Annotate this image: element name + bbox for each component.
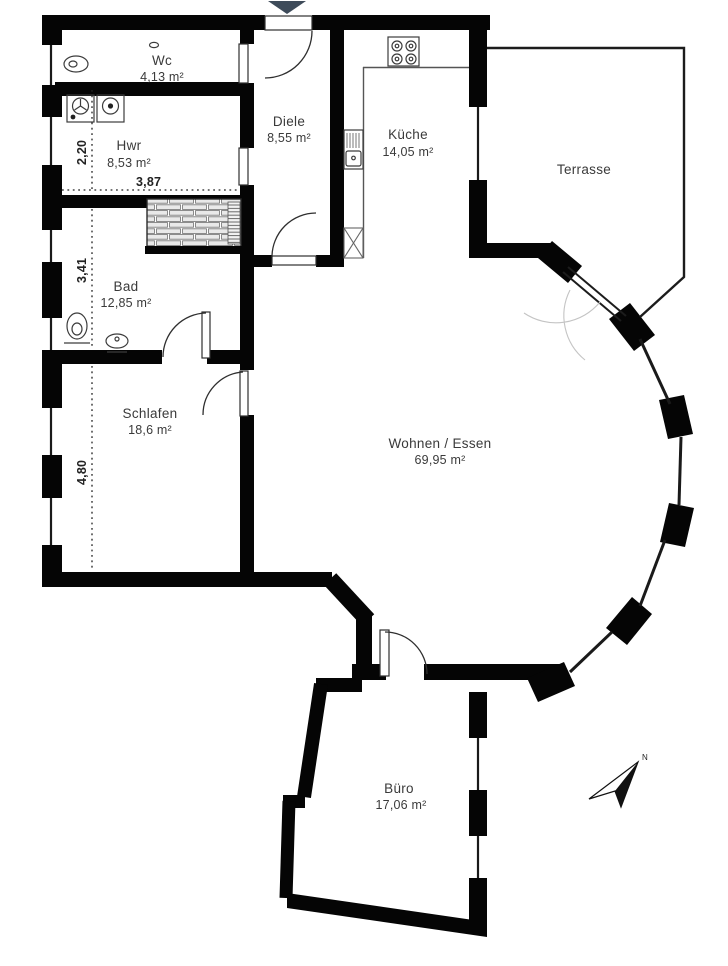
north-arrow-icon: N <box>589 753 648 807</box>
floorplan-page: 2,20 3,87 3,41 4,80 Wc 4,13 m² Hwr 8,53 … <box>0 0 728 966</box>
entrance-door <box>265 16 312 78</box>
bad-sink-icon <box>106 334 128 352</box>
svg-text:8,55 m²: 8,55 m² <box>267 131 311 145</box>
entrance-arrow-icon <box>268 1 306 14</box>
wall-top-right <box>312 15 490 30</box>
kitchen-counter <box>363 67 469 258</box>
dim-hwr-height: 2,20 <box>75 140 89 165</box>
bad-door <box>162 312 210 366</box>
hwr-door <box>239 148 248 185</box>
svg-text:12,85 m²: 12,85 m² <box>101 296 152 310</box>
svg-text:14,05 m²: 14,05 m² <box>383 145 434 159</box>
pier-4 <box>606 597 652 645</box>
svg-text:Bad: Bad <box>114 279 139 294</box>
walls <box>42 15 694 937</box>
wc-door <box>239 44 248 83</box>
pier-2 <box>659 395 693 439</box>
floorplan-drawing: 2,20 3,87 3,41 4,80 Wc 4,13 m² Hwr 8,53 … <box>0 0 728 966</box>
label-wohnen: Wohnen / Essen 69,95 m² <box>388 436 491 467</box>
svg-text:Küche: Küche <box>388 127 428 142</box>
north-label: N <box>642 753 648 762</box>
shower-icon <box>145 199 244 254</box>
stove-icon <box>388 37 419 66</box>
label-diele: Diele 8,55 m² <box>267 114 311 145</box>
kitchen-appliance-x-icon <box>344 228 363 258</box>
svg-text:Büro: Büro <box>384 781 414 796</box>
dim-hwr-width: 3,87 <box>136 175 161 189</box>
label-bad: Bad 12,85 m² <box>101 279 152 310</box>
label-schlafen: Schlafen 18,6 m² <box>123 406 178 437</box>
wall-buero-bottom <box>287 893 487 937</box>
svg-text:Terrasse: Terrasse <box>557 162 611 177</box>
wall-diele-kueche <box>330 30 344 260</box>
diele-wohnen-door <box>272 213 316 267</box>
wall-diele-wohnen-l <box>240 255 272 267</box>
bad-toilet-icon <box>64 313 90 343</box>
label-buero: Büro 17,06 m² <box>376 781 427 812</box>
washing-machine-icon <box>67 95 94 122</box>
svg-text:17,06 m²: 17,06 m² <box>376 798 427 812</box>
svg-text:4,13 m²: 4,13 m² <box>140 70 184 84</box>
svg-text:18,6 m²: 18,6 m² <box>128 423 172 437</box>
label-wc: Wc 4,13 m² <box>140 53 184 84</box>
svg-text:8,53 m²: 8,53 m² <box>107 156 151 170</box>
dimension-lines: 2,20 3,87 3,41 4,80 <box>62 90 240 570</box>
room-labels: Wc 4,13 m² Hwr 8,53 m² Diele 8,55 m² Küc… <box>101 53 612 812</box>
svg-text:Hwr: Hwr <box>117 138 142 153</box>
svg-text:Diele: Diele <box>273 114 305 129</box>
kitchen-sink-icon <box>344 130 363 169</box>
buero-door <box>380 630 427 676</box>
dryer-icon <box>97 95 124 122</box>
svg-text:Wohnen / Essen: Wohnen / Essen <box>388 436 491 451</box>
schlafen-door <box>203 370 254 416</box>
wall-bad-schlafen-l <box>42 350 162 364</box>
svg-text:Wc: Wc <box>152 53 172 68</box>
wall-wc-hwr <box>55 82 240 96</box>
label-kueche: Küche 14,05 m² <box>383 127 434 159</box>
svg-text:69,95 m²: 69,95 m² <box>415 453 466 467</box>
dim-bad-height: 3,41 <box>75 258 89 283</box>
terrace-french-door <box>524 267 626 360</box>
wall-schlafen-bottom <box>42 572 332 587</box>
label-terrasse: Terrasse <box>557 162 611 177</box>
dim-schlafen-height: 4,80 <box>75 460 89 485</box>
label-hwr: Hwr 8,53 m² <box>107 138 151 170</box>
svg-text:Schlafen: Schlafen <box>123 406 178 421</box>
terrace-outline <box>487 48 684 317</box>
wall-bad-schlafen-r <box>207 350 254 364</box>
wall-top-left <box>42 15 265 30</box>
wc-sink-icon <box>150 42 159 47</box>
wc-toilet-icon <box>64 56 88 72</box>
